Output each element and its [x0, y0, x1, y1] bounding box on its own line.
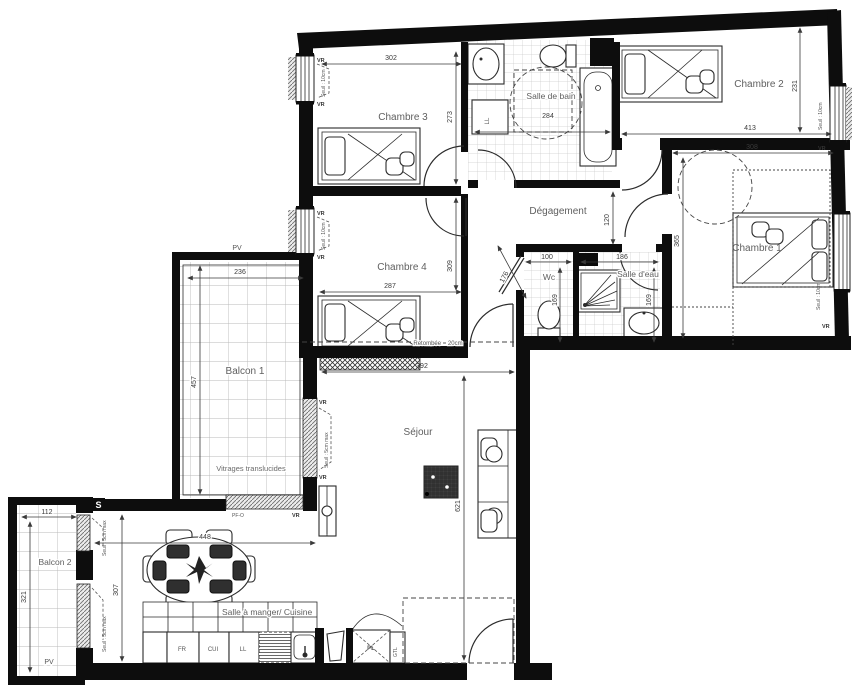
seuil-label: Seuil : 10cm: [321, 69, 327, 97]
washbasin-icon-shower-room: [624, 308, 664, 338]
dim-balcon1-width: 236: [234, 269, 246, 276]
pv-label-balcon2: PV: [44, 659, 54, 666]
glazed-strip: [320, 357, 420, 370]
unit-washer-label: LL: [240, 647, 247, 653]
shower-icon: [578, 270, 620, 312]
dim-chambre1-width: 308: [746, 144, 758, 151]
wall-bottom-bedroom-block: [516, 336, 851, 350]
sofa-icon: [478, 430, 518, 538]
gtl-label: GTL: [393, 647, 399, 657]
dim-degagement: 120: [604, 214, 611, 226]
dim-shower-room-width: 186: [616, 254, 628, 261]
floor-plan: LL: [0, 0, 854, 692]
vr-label: VR: [317, 58, 325, 64]
label-chambre4: Chambre 4: [377, 262, 427, 273]
pf-o-label: PF-O: [232, 513, 244, 519]
dim-chambre2-depth: 231: [792, 80, 799, 92]
dim-balcon2-width: 112: [41, 509, 52, 516]
seuil-label: Seuil : 10cm: [321, 222, 327, 250]
dim-chambre3-depth: 273: [447, 111, 454, 123]
label-salle-de-bain: Salle de bain: [526, 91, 575, 101]
retombee-label: Retombée = 20cm: [413, 341, 462, 347]
dim-chambre3-width: 302: [385, 55, 397, 62]
vr-label: VR: [317, 211, 325, 217]
seuil-label: Seuil : 5cm max: [102, 520, 108, 556]
label-balcon1: Balcon 1: [226, 366, 265, 377]
wall-right-sejour: [516, 345, 530, 680]
closet-label: PL: [367, 646, 375, 652]
floor-mat: [424, 466, 458, 498]
dim-cuisine-depth: 307: [113, 584, 120, 596]
label-degagement: Dégagement: [529, 206, 586, 217]
vr-label: VR: [319, 400, 327, 406]
vr-label: VR: [319, 475, 327, 481]
label-salle-a-manger: Salle à manger/ Cuisine: [222, 607, 313, 617]
dim-balcon2-depth: 321: [21, 591, 28, 603]
dim-cuisine-width: 448: [199, 534, 211, 541]
toilet-icon-bathroom: [540, 45, 576, 67]
label-wc: Wc: [543, 272, 556, 282]
kitchen-units: FR CUI LL: [143, 632, 317, 663]
radiator-icon: [319, 486, 336, 536]
label-salle-deau: Salle d'eau: [617, 269, 659, 279]
unit-fridge-label: FR: [178, 647, 187, 653]
vr-label: VR: [292, 513, 300, 519]
balcony2-tiles: [17, 505, 76, 676]
dim-chambre4-width: 287: [384, 283, 396, 290]
washing-machine-label: LL: [485, 117, 491, 124]
bathtub-icon: [580, 68, 616, 166]
label-chambre2: Chambre 2: [734, 79, 784, 90]
floor-plan-drawing: LL: [0, 0, 854, 692]
label-balcon2: Balcon 2: [38, 557, 71, 567]
dim-chambre1-depth: 365: [674, 235, 681, 247]
dim-shower-room-depth: 169: [646, 294, 653, 306]
washbasin-icon-bathroom: [468, 44, 504, 84]
duct-shaft: [590, 38, 614, 66]
bed-icon-chambre2: [618, 46, 722, 102]
label-vitrages: Vitrages translucides: [216, 464, 286, 473]
dim-sejour-depth: 621: [455, 500, 462, 512]
pv-label-balcon1: PV: [232, 245, 242, 252]
dim-balcon1-depth: 457: [191, 376, 198, 388]
dim-chambre2-width: 413: [744, 125, 756, 132]
seuil-label: Seuil : 5cm max: [324, 432, 330, 468]
vr-label: VR: [822, 324, 830, 330]
seuil-label: Seuil : 5cm max: [102, 616, 108, 652]
bed-icon-chambre3: [318, 128, 420, 184]
dim-chambre4-depth: 309: [447, 260, 454, 272]
label-sejour: Séjour: [404, 427, 434, 438]
dim-wc-width: 100: [541, 254, 553, 261]
label-chambre1: Chambre 1: [732, 243, 782, 254]
door-leaf-ajar: [327, 631, 344, 661]
s-marker: S: [95, 500, 101, 510]
label-chambre3: Chambre 3: [378, 112, 428, 123]
wall-bottom: [83, 663, 467, 680]
washing-machine-icon: LL: [472, 100, 508, 134]
unit-cooker-label: CUI: [208, 647, 219, 653]
dim-bathroom-width: 284: [542, 113, 554, 120]
vr-label: VR: [317, 102, 325, 108]
vr-label: VR: [818, 146, 826, 152]
seuil-label: Seuil : 10cm: [818, 102, 824, 130]
dim-sejour-width: 392: [416, 363, 428, 370]
vr-label: VR: [317, 255, 325, 261]
balcony1-tiles: [180, 262, 303, 498]
dim-wc-depth: 169: [552, 294, 559, 306]
